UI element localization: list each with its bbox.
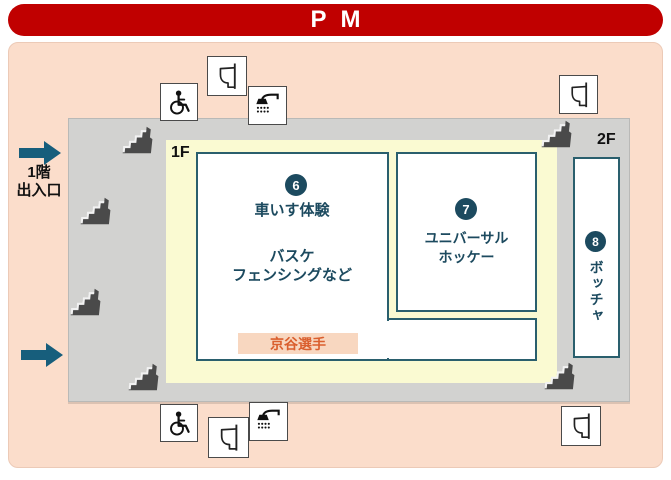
stairs-icon	[128, 362, 160, 392]
room8-title: ボッチャ	[587, 260, 607, 324]
room-merge-patch	[386, 321, 391, 358]
toilet-icon	[208, 417, 249, 458]
stairs-icon	[122, 125, 154, 155]
room7-title-line2: ホッケー	[397, 247, 536, 267]
stairs-icon	[80, 196, 112, 226]
session-title: PM	[297, 6, 375, 34]
room-boccia	[573, 157, 620, 358]
room-wheelchair-experience-extension	[387, 318, 537, 361]
entrance-arrow-icon	[19, 141, 61, 165]
room-number-badge-6: 6	[285, 174, 307, 196]
room8-title-wrap: ボッチャ	[573, 260, 620, 324]
floor-1f-label: 1F	[171, 144, 190, 162]
toilet-icon	[207, 56, 247, 96]
shower-icon	[249, 402, 288, 441]
entrance-arrow-icon	[21, 343, 63, 367]
room-number-badge-7: 7	[455, 198, 477, 220]
wheelchair-accessible-icon	[160, 404, 198, 442]
room6-activity-1: バスケ	[198, 245, 386, 266]
room-number-badge-8: 8	[585, 231, 606, 252]
stairs-icon	[544, 361, 576, 391]
stairs-icon	[70, 287, 102, 317]
shower-icon	[248, 86, 287, 125]
room6-title: 車いす体験	[198, 199, 386, 220]
room7-title-line1: ユニバーサル	[397, 228, 536, 248]
entrance-label-line2: 出入口	[8, 182, 70, 200]
floor-2f-label: 2F	[597, 131, 616, 149]
header-bar: PM	[8, 4, 663, 36]
player-tag: 京谷選手	[238, 333, 358, 354]
wheelchair-accessible-icon	[160, 83, 198, 121]
room6-activity-2: フェンシングなど	[198, 264, 386, 285]
entrance-label-line1: 1階	[8, 164, 70, 182]
stairs-icon	[541, 119, 573, 149]
toilet-icon	[559, 75, 598, 114]
entrance-label: 1階 出入口	[8, 164, 70, 200]
facility-map: PM 1F 2F 1階 出入口 6 車いす体験 バスケ フェンシングなど 京谷選…	[0, 0, 671, 480]
toilet-icon	[561, 406, 601, 446]
